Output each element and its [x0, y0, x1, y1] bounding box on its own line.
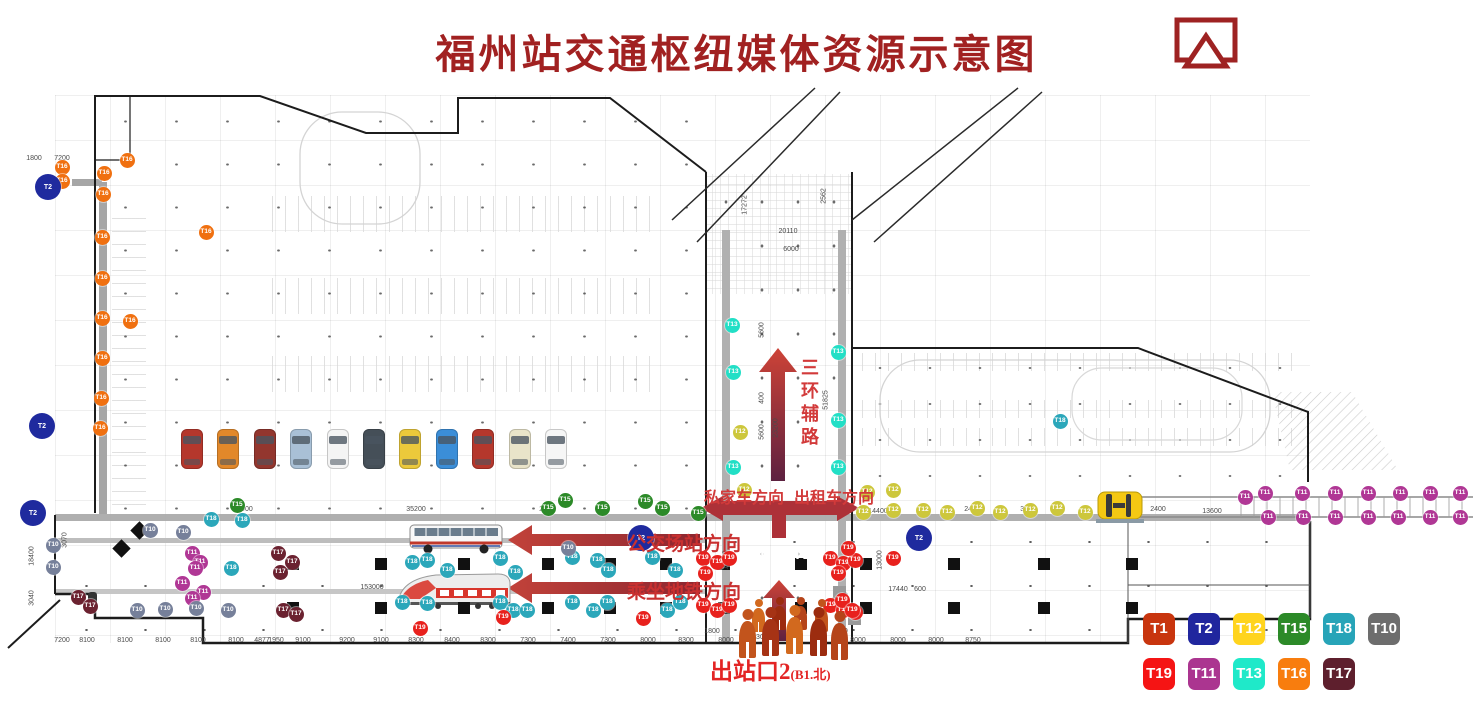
exit-2-main: 出站口2: [710, 659, 791, 684]
marker-T17: T17: [271, 546, 286, 561]
legend-item-T16: T16: [1278, 658, 1310, 690]
marker-T18: T18: [601, 563, 616, 578]
parked-car: [254, 429, 276, 469]
marker-T11: T11: [1296, 510, 1311, 525]
marker-T12: T12: [1050, 501, 1065, 516]
marker-T2: T2: [35, 174, 61, 200]
legend-item-T1: T1: [1143, 613, 1175, 645]
marker-T16: T16: [199, 225, 214, 240]
marker-T12: T12: [993, 505, 1008, 520]
dimension-label: 600: [914, 586, 926, 593]
marker-T16: T16: [93, 421, 108, 436]
marker-T11: T11: [1453, 510, 1468, 525]
legend-item-T19: T19: [1143, 658, 1175, 690]
marker-T10: T10: [221, 603, 236, 618]
label-metro-direction: 乘坐地铁方向: [627, 577, 741, 604]
marker-T18: T18: [600, 595, 615, 610]
dimension-label: 9100: [295, 637, 311, 644]
marker-T18: T18: [440, 563, 455, 578]
person-head: [765, 607, 776, 618]
legend-item-T15: T15: [1278, 613, 1310, 645]
dimension-label: 7400: [560, 637, 576, 644]
parked-car: [217, 429, 239, 469]
marker-T13: T13: [726, 365, 741, 380]
legend-item-T2: T2: [1188, 613, 1220, 645]
parked-car: [545, 429, 567, 469]
parked-car: [327, 429, 349, 469]
marker-T12: T12: [886, 483, 901, 498]
dimension-label: 35200: [406, 506, 425, 513]
dimension-label: 3070: [62, 532, 69, 548]
person-head: [789, 605, 800, 616]
marker-T11: T11: [1423, 486, 1438, 501]
dimension-label: 23200: [773, 418, 780, 437]
person-head: [797, 597, 805, 605]
marker-T16: T16: [120, 153, 135, 168]
marker-T19: T19: [636, 611, 651, 626]
person-legs-gap: [838, 644, 840, 660]
marker-T12: T12: [970, 501, 985, 516]
marker-T16: T16: [95, 351, 110, 366]
dimension-label: 9200: [339, 637, 355, 644]
marker-T10: T10: [158, 602, 173, 617]
marker-T17: T17: [83, 599, 98, 614]
marker-T12: T12: [916, 503, 931, 518]
marker-T16: T16: [96, 187, 111, 202]
marker-T19: T19: [413, 621, 428, 636]
person-icon: [831, 623, 848, 660]
media-type-legend: T1T2T12T15T18T10T19T11T13T16T17: [1143, 613, 1400, 703]
marker-T2: T2: [906, 525, 932, 551]
dimension-label: 7200: [54, 637, 70, 644]
person-head: [776, 597, 784, 605]
column-square: [375, 558, 387, 570]
marker-T11: T11: [1295, 486, 1310, 501]
marker-T15: T15: [595, 501, 610, 516]
label-bus-station-direction: 公交场站方向: [627, 529, 741, 556]
label-taxi-direction: 出租车方向: [794, 484, 874, 508]
legend-item-T17: T17: [1323, 658, 1355, 690]
marker-T11: T11: [1453, 486, 1468, 501]
marker-T12: T12: [940, 505, 955, 520]
bus-illustration: [410, 525, 502, 554]
dimension-label: 8100: [155, 637, 171, 644]
column-square: [375, 602, 387, 614]
marker-T18: T18: [405, 555, 420, 570]
dimension-label: 1800: [704, 628, 720, 635]
marker-T18: T18: [235, 513, 250, 528]
marker-T2: T2: [29, 413, 55, 439]
marker-T15: T15: [558, 493, 573, 508]
parked-car: [181, 429, 203, 469]
marker-T18: T18: [508, 565, 523, 580]
legend-item-T13: T13: [1233, 658, 1265, 690]
marker-T11: T11: [1261, 510, 1276, 525]
dimension-label: 7300: [600, 637, 616, 644]
marker-T13: T13: [831, 413, 846, 428]
marker-T11: T11: [1391, 510, 1406, 525]
t1-zone-box: T1: [742, 540, 772, 570]
dimension-label: 8300: [480, 637, 496, 644]
person-legs-gap: [758, 622, 760, 632]
dimension-label: 7300: [520, 637, 536, 644]
dimension-label: 13600: [1202, 508, 1221, 515]
parked-car: [509, 429, 531, 469]
parked-car: [399, 429, 421, 469]
cast-screen-icon: [1172, 16, 1242, 74]
marker-T17: T17: [273, 565, 288, 580]
dimension-label: 3040: [29, 590, 36, 606]
marker-T11: T11: [1361, 510, 1376, 525]
dimension-label: 5600: [759, 322, 766, 338]
marker-T18: T18: [493, 551, 508, 566]
diagram-canvas: 福州站交通枢纽媒体资源示意图: [0, 0, 1473, 719]
dimension-label: 13000: [877, 550, 884, 569]
person-head: [755, 599, 763, 607]
legend-item-T12: T12: [1233, 613, 1265, 645]
dimension-label: 8000: [890, 637, 906, 644]
marker-T15: T15: [541, 501, 556, 516]
dimension-label: 8000: [928, 637, 944, 644]
marker-T10: T10: [189, 601, 204, 616]
person-icon: [762, 619, 779, 656]
marker-T19: T19: [845, 603, 860, 618]
marker-T2: T2: [20, 500, 46, 526]
dimension-label: 8100: [228, 637, 244, 644]
marker-T18: T18: [668, 563, 683, 578]
legend-item-T11: T11: [1188, 658, 1220, 690]
marker-T13: T13: [831, 460, 846, 475]
person-icon: [786, 617, 803, 654]
marker-T15: T15: [230, 498, 245, 513]
marker-T16: T16: [94, 391, 109, 406]
person-head: [834, 611, 845, 622]
legend-item-T18: T18: [1323, 613, 1355, 645]
marker-T11: T11: [175, 576, 190, 591]
column-square: [458, 602, 470, 614]
marker-T18: T18: [586, 603, 601, 618]
column-square: [542, 558, 554, 570]
marker-T13: T13: [725, 318, 740, 333]
marker-T10: T10: [46, 560, 61, 575]
parked-car: [363, 429, 385, 469]
marker-T18: T18: [1053, 414, 1068, 429]
dimension-label: 8000: [850, 637, 866, 644]
dimension-label: 51825: [823, 390, 830, 409]
marker-T12: T12: [733, 425, 748, 440]
marker-T11: T11: [1258, 486, 1273, 501]
marker-T19: T19: [886, 551, 901, 566]
dimension-label: 17272: [742, 195, 749, 214]
marker-T13: T13: [831, 345, 846, 360]
page-title: 福州站交通枢纽媒体资源示意图: [436, 22, 1038, 80]
marker-T18: T18: [224, 561, 239, 576]
marker-T11: T11: [1238, 490, 1253, 505]
parked-car: [436, 429, 458, 469]
taxi-illustration: [1096, 492, 1144, 523]
person-head: [818, 599, 826, 607]
marker-T13: T13: [726, 460, 741, 475]
dimension-label: 8100: [117, 637, 133, 644]
dimension-label: 8100: [190, 637, 206, 644]
dimension-label: 1950: [268, 637, 284, 644]
column-square: [1038, 602, 1050, 614]
marker-T15: T15: [638, 494, 653, 509]
dimension-label: 8400: [444, 637, 460, 644]
marker-T18: T18: [660, 603, 675, 618]
marker-T18: T18: [520, 603, 535, 618]
marker-T10: T10: [176, 525, 191, 540]
legend-row: T1T2T12T15T18T10: [1143, 613, 1400, 645]
marker-T18: T18: [395, 595, 410, 610]
dimension-label: 153000: [360, 584, 383, 591]
arrow-up-ringroad: [759, 348, 797, 481]
dimension-label: 5600: [759, 424, 766, 440]
marker-T16: T16: [55, 160, 70, 175]
marker-T12: T12: [1078, 505, 1093, 520]
marker-T11: T11: [1328, 510, 1343, 525]
column-square: [1126, 602, 1138, 614]
dimension-label: 14400: [868, 508, 887, 515]
marker-T18: T18: [420, 596, 435, 611]
dimension-label: 17440: [888, 586, 907, 593]
dimension-label: 8300: [408, 637, 424, 644]
marker-T16: T16: [95, 271, 110, 286]
marker-T16: T16: [95, 311, 110, 326]
marker-T10: T10: [561, 541, 576, 556]
marker-T15: T15: [655, 501, 670, 516]
marker-T11: T11: [188, 561, 203, 576]
legend-item-T10: T10: [1368, 613, 1400, 645]
dimension-label: 8000: [640, 637, 656, 644]
marker-T11: T11: [1328, 486, 1343, 501]
dimension-label: 8100: [79, 637, 95, 644]
dimension-label: 8000: [718, 637, 734, 644]
legend-row: T19T11T13T16T17: [1143, 658, 1400, 690]
label-ring-road: 三环辅路: [796, 358, 822, 450]
marker-T10: T10: [46, 538, 61, 553]
t1-zone-box: T1: [787, 540, 817, 570]
person-head: [813, 607, 824, 618]
parked-car: [290, 429, 312, 469]
exit-2-label: 出站口2(B1.北): [710, 652, 831, 686]
marker-T11: T11: [1361, 486, 1376, 501]
marker-T17: T17: [289, 607, 304, 622]
dimension-label: 8300: [678, 637, 694, 644]
marker-T10: T10: [130, 603, 145, 618]
parked-car: [472, 429, 494, 469]
marker-T16: T16: [97, 166, 112, 181]
column-square: [458, 558, 470, 570]
label-private-car-direction: 私家车方向: [704, 484, 784, 508]
dimension-label: 6000: [783, 246, 799, 253]
marker-T12: T12: [886, 503, 901, 518]
marker-T10: T10: [143, 523, 158, 538]
dimension-label: 400: [759, 392, 766, 404]
marker-T19: T19: [841, 541, 856, 556]
column-square: [1038, 558, 1050, 570]
marker-T19: T19: [831, 566, 846, 581]
marker-T16: T16: [95, 230, 110, 245]
marker-T11: T11: [1423, 510, 1438, 525]
marker-T12: T12: [1023, 503, 1038, 518]
marker-T17: T17: [285, 555, 300, 570]
exit-2-sub: (B1.北): [791, 667, 831, 682]
marker-T18: T18: [420, 553, 435, 568]
dimension-label: 1800: [26, 155, 42, 162]
column-square: [1126, 558, 1138, 570]
marker-T18: T18: [565, 595, 580, 610]
column-square: [948, 558, 960, 570]
marker-T16: T16: [123, 314, 138, 329]
dimension-label: 8750: [965, 637, 981, 644]
person-head: [742, 609, 753, 620]
person-legs-gap: [779, 620, 781, 630]
column-square: [948, 602, 960, 614]
marker-T19: T19: [496, 610, 511, 625]
dimension-label: 20110: [779, 228, 798, 235]
column-square: [542, 602, 554, 614]
marker-T18: T18: [493, 595, 508, 610]
person-icon: [810, 619, 827, 656]
marker-T11: T11: [1393, 486, 1408, 501]
dimension-label: 2400: [1150, 506, 1166, 513]
dimension-label: 9100: [373, 637, 389, 644]
dimension-label: 18400: [29, 546, 36, 565]
marker-T18: T18: [204, 512, 219, 527]
dimension-label: 2562: [821, 188, 828, 204]
